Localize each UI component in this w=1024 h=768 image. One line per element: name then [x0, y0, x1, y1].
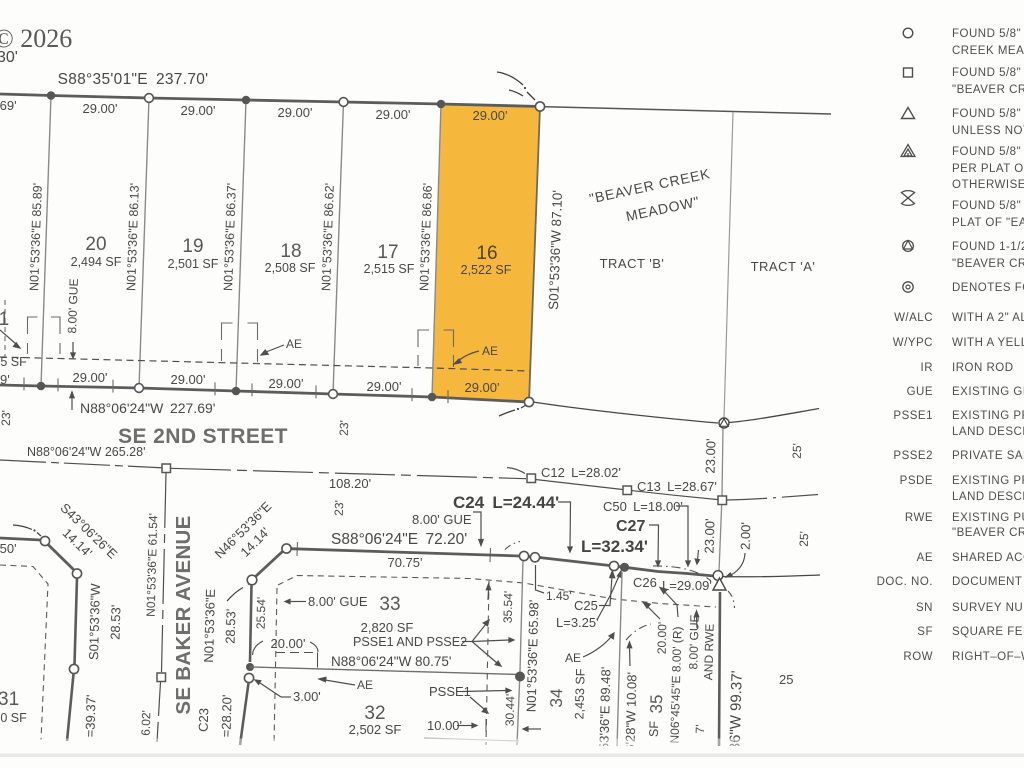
svg-text:2.00': 2.00'	[738, 522, 754, 550]
svg-text:108.20': 108.20'	[329, 476, 371, 491]
svg-text:C13 L=28.67': C13 L=28.67'	[637, 479, 717, 494]
svg-text:SQUARE FEET: SQUARE FEET	[952, 626, 1024, 638]
svg-text:DOC. NO.: DOC. NO.	[877, 576, 933, 588]
svg-text:30': 30'	[0, 49, 18, 66]
svg-text:AE: AE	[565, 651, 581, 665]
svg-text:AE: AE	[286, 337, 302, 351]
svg-text:7': 7'	[693, 724, 707, 733]
svg-text:25': 25'	[790, 443, 804, 459]
svg-text:33: 33	[379, 594, 400, 615]
svg-text:WITH A YELLOW PLAS: WITH A YELLOW PLAS	[952, 337, 1024, 349]
svg-text:=39.37': =39.37'	[82, 694, 98, 737]
svg-text:29.00': 29.00'	[375, 107, 410, 122]
svg-text:6.02': 6.02'	[139, 710, 154, 736]
svg-text:21: 21	[0, 309, 9, 330]
svg-text:8.00' GUE: 8.00' GUE	[686, 614, 701, 669]
svg-text:CREEK MEADOWS NO. 2: CREEK MEADOWS NO. 2	[952, 45, 1024, 57]
svg-text:28.53': 28.53'	[223, 609, 239, 644]
svg-text:2,820 SF: 2,820 SF	[361, 620, 414, 635]
svg-text:OTHERWISE: OTHERWISE	[952, 179, 1024, 191]
svg-text:29.00': 29.00'	[170, 372, 205, 387]
svg-text:SF: SF	[647, 720, 661, 737]
svg-text:EXISTING PRIVATE S: EXISTING PRIVATE S	[952, 475, 1024, 487]
svg-text:PSSE1: PSSE1	[893, 410, 933, 422]
svg-text:C50 L=18.00': C50 L=18.00'	[603, 499, 683, 514]
svg-text:L=32.34': L=32.34'	[581, 537, 648, 556]
svg-text:TRACT 'B': TRACT 'B'	[600, 256, 665, 271]
svg-text:C23: C23	[196, 708, 212, 732]
svg-text:2,515 SF: 2,515 SF	[364, 262, 415, 276]
svg-text:=28.20': =28.20'	[218, 694, 234, 737]
svg-text:N88°06'24"W 80.75': N88°06'24"W 80.75'	[331, 654, 451, 669]
svg-text:23': 23'	[0, 410, 13, 426]
svg-text:32: 32	[364, 703, 385, 724]
svg-text:TRACT 'A': TRACT 'A'	[751, 259, 816, 274]
svg-text:PSDE: PSDE	[900, 475, 933, 487]
svg-text:18: 18	[280, 241, 301, 262]
svg-text:S88°35'01"E 237.70': S88°35'01"E 237.70'	[58, 71, 209, 88]
svg-text:29.00': 29.00'	[72, 370, 107, 385]
svg-text:"BEAVER CREEK MEAD: "BEAVER CREEK MEAD	[952, 258, 1024, 270]
svg-text:29.00': 29.00'	[464, 380, 499, 395]
svg-text:L=3.25': L=3.25'	[556, 615, 599, 630]
svg-text:35: 35	[647, 694, 666, 713]
svg-text:S88°06'24"E 72.20': S88°06'24"E 72.20'	[331, 531, 467, 548]
svg-text:2,453 SF: 2,453 SF	[572, 668, 587, 719]
svg-text:RIGHT–OF–WAY: RIGHT–OF–WAY	[952, 651, 1024, 663]
svg-text:17: 17	[377, 242, 398, 263]
svg-text:16: 16	[476, 243, 497, 264]
svg-text:SHARED ACCESS EAS: SHARED ACCESS EAS	[952, 552, 1024, 564]
svg-text:W/ALC: W/ALC	[894, 312, 933, 324]
svg-text:19: 19	[182, 236, 203, 257]
svg-text:35.54': 35.54'	[501, 591, 516, 624]
svg-text:"BEAVER CREEK MEAD: "BEAVER CREEK MEAD	[952, 84, 1024, 96]
svg-text:20: 20	[85, 234, 106, 255]
svg-text:8.00' GUE: 8.00' GUE	[412, 512, 472, 527]
svg-text:25.54': 25.54'	[254, 597, 269, 630]
svg-text:3.00': 3.00'	[293, 689, 321, 704]
svg-text:C24 L=24.44': C24 L=24.44'	[453, 493, 559, 512]
svg-text:2,501 SF: 2,501 SF	[168, 257, 219, 271]
svg-text:29.00': 29.00'	[366, 379, 401, 394]
svg-text:29.00': 29.00'	[268, 376, 303, 391]
svg-text:8.00' GUE: 8.00' GUE	[65, 278, 81, 333]
svg-text:31: 31	[0, 689, 19, 710]
svg-text:23.00': 23.00'	[703, 438, 719, 473]
svg-text:W/YPC: W/YPC	[893, 337, 933, 349]
svg-text:DENOTES FOUND MON: DENOTES FOUND MON	[952, 282, 1024, 294]
svg-text:FOUND 5/8" IRON ROD: FOUND 5/8" IRON ROD	[952, 28, 1024, 40]
svg-text:"BEAVER CREEK MEA: "BEAVER CREEK MEA	[952, 527, 1024, 539]
svg-text:N01°53'36"E 65.98': N01°53'36"E 65.98'	[524, 600, 542, 713]
svg-text:GUE: GUE	[907, 386, 933, 398]
svg-text:UNLESS NOTED OTHER: UNLESS NOTED OTHER	[952, 125, 1024, 137]
svg-text:C26: C26	[633, 575, 657, 590]
svg-text:N88°06'24"W 265.28': N88°06'24"W 265.28'	[27, 445, 145, 459]
svg-text:28.53': 28.53'	[108, 605, 124, 640]
svg-text:9': 9'	[0, 372, 10, 387]
svg-text:N01°53'36"E 61.54': N01°53'36"E 61.54'	[144, 513, 161, 617]
svg-text:RWE: RWE	[905, 512, 933, 524]
svg-text:29.00': 29.00'	[180, 103, 215, 118]
svg-text:70.75': 70.75'	[387, 555, 422, 570]
svg-text:ROW: ROW	[903, 651, 933, 663]
svg-text:EXISTING PRIVATE S: EXISTING PRIVATE S	[952, 410, 1024, 422]
svg-text:SN: SN	[916, 602, 933, 614]
svg-text:IRON ROD: IRON ROD	[952, 362, 1014, 374]
svg-text:C27: C27	[616, 518, 645, 535]
svg-text:LAND DESCRIBED IN: LAND DESCRIBED IN	[952, 426, 1024, 438]
svg-text:PRIVATE SANITARY S: PRIVATE SANITARY S	[952, 450, 1024, 462]
svg-text:29.00': 29.00'	[277, 105, 312, 120]
svg-text:.69': .69'	[0, 98, 17, 113]
svg-text:34: 34	[547, 688, 566, 707]
svg-text:EXISTING PUBLIC RA: EXISTING PUBLIC RA	[952, 512, 1024, 524]
svg-text:2,508 SF: 2,508 SF	[265, 261, 316, 275]
svg-text:30.44': 30.44'	[503, 694, 518, 727]
svg-text:29.00': 29.00'	[472, 108, 507, 123]
svg-text:C25: C25	[574, 598, 598, 613]
svg-text:LAND DESCRIBED IN: LAND DESCRIBED IN	[952, 491, 1024, 503]
svg-text:29.00': 29.00'	[82, 101, 117, 116]
svg-text:23': 23'	[337, 420, 352, 436]
svg-text:2,502 SF: 2,502 SF	[349, 722, 402, 737]
svg-text:1.45': 1.45'	[546, 589, 572, 603]
svg-text:AE: AE	[917, 552, 933, 564]
svg-text:N01°53'36"E: N01°53'36"E	[201, 588, 218, 662]
svg-text:FOUND 1-1/2" ALUMI: FOUND 1-1/2" ALUMI	[952, 241, 1024, 253]
svg-text:FOUND 5/8" IRON ROD: FOUND 5/8" IRON ROD	[952, 146, 1024, 158]
svg-text:FOUND 5/8" IRON ROD: FOUND 5/8" IRON ROD	[952, 200, 1024, 212]
svg-text:EXISTING GENERAL U: EXISTING GENERAL U	[952, 386, 1024, 398]
svg-text:23.00': 23.00'	[702, 518, 718, 553]
svg-text:25: 25	[779, 672, 793, 687]
svg-text:PSSE2: PSSE2	[893, 450, 933, 462]
svg-text:20.00': 20.00'	[270, 636, 305, 651]
svg-text:S01°53'36"W: S01°53'36"W	[86, 583, 103, 661]
svg-text:.50': .50'	[0, 541, 17, 556]
svg-text:SURVEY NUMBER: SURVEY NUMBER	[952, 602, 1024, 614]
svg-text:SF: SF	[917, 626, 933, 638]
svg-text:N88°06'24"W 227.69': N88°06'24"W 227.69'	[80, 400, 215, 416]
svg-text:PSSE1 AND PSSE2: PSSE1 AND PSSE2	[353, 635, 467, 649]
svg-text:FOUND 5/8" IRON ROD: FOUND 5/8" IRON ROD	[952, 108, 1024, 120]
svg-text:AND RWE: AND RWE	[701, 624, 716, 681]
svg-text:IR: IR	[921, 362, 934, 374]
svg-text:DOCUMENT NUMBER: DOCUMENT NUMBER	[952, 576, 1024, 588]
svg-text:2,485 SF: 2,485 SF	[0, 355, 27, 369]
svg-text:FOUND 5/8" IRON ROD: FOUND 5/8" IRON ROD	[952, 67, 1024, 79]
svg-text:AE: AE	[357, 678, 373, 692]
svg-text:AE: AE	[482, 344, 498, 358]
svg-text:20.00': 20.00'	[655, 622, 670, 655]
svg-text:C12 L=28.02': C12 L=28.02'	[541, 465, 621, 480]
svg-text:L=29.09': L=29.09'	[662, 578, 712, 593]
svg-text:10.00': 10.00'	[427, 718, 462, 733]
svg-text:PER PLAT OF "BEAVER: PER PLAT OF "BEAVER	[952, 163, 1024, 175]
svg-text:25': 25'	[797, 531, 811, 547]
svg-text:2,494 SF: 2,494 SF	[71, 255, 122, 269]
svg-text:2,522 SF: 2,522 SF	[461, 263, 512, 277]
svg-text:PLAT OF "EAST CREEK: PLAT OF "EAST CREEK	[952, 217, 1024, 229]
svg-text:SE BAKER AVENUE: SE BAKER AVENUE	[172, 515, 195, 714]
svg-text:8.00' GUE: 8.00' GUE	[308, 594, 368, 609]
svg-text:WITH A 2" ALUMINUM: WITH A 2" ALUMINUM	[952, 312, 1024, 324]
svg-text:2,040 SF: 2,040 SF	[0, 711, 27, 725]
svg-text:23': 23'	[332, 500, 347, 516]
